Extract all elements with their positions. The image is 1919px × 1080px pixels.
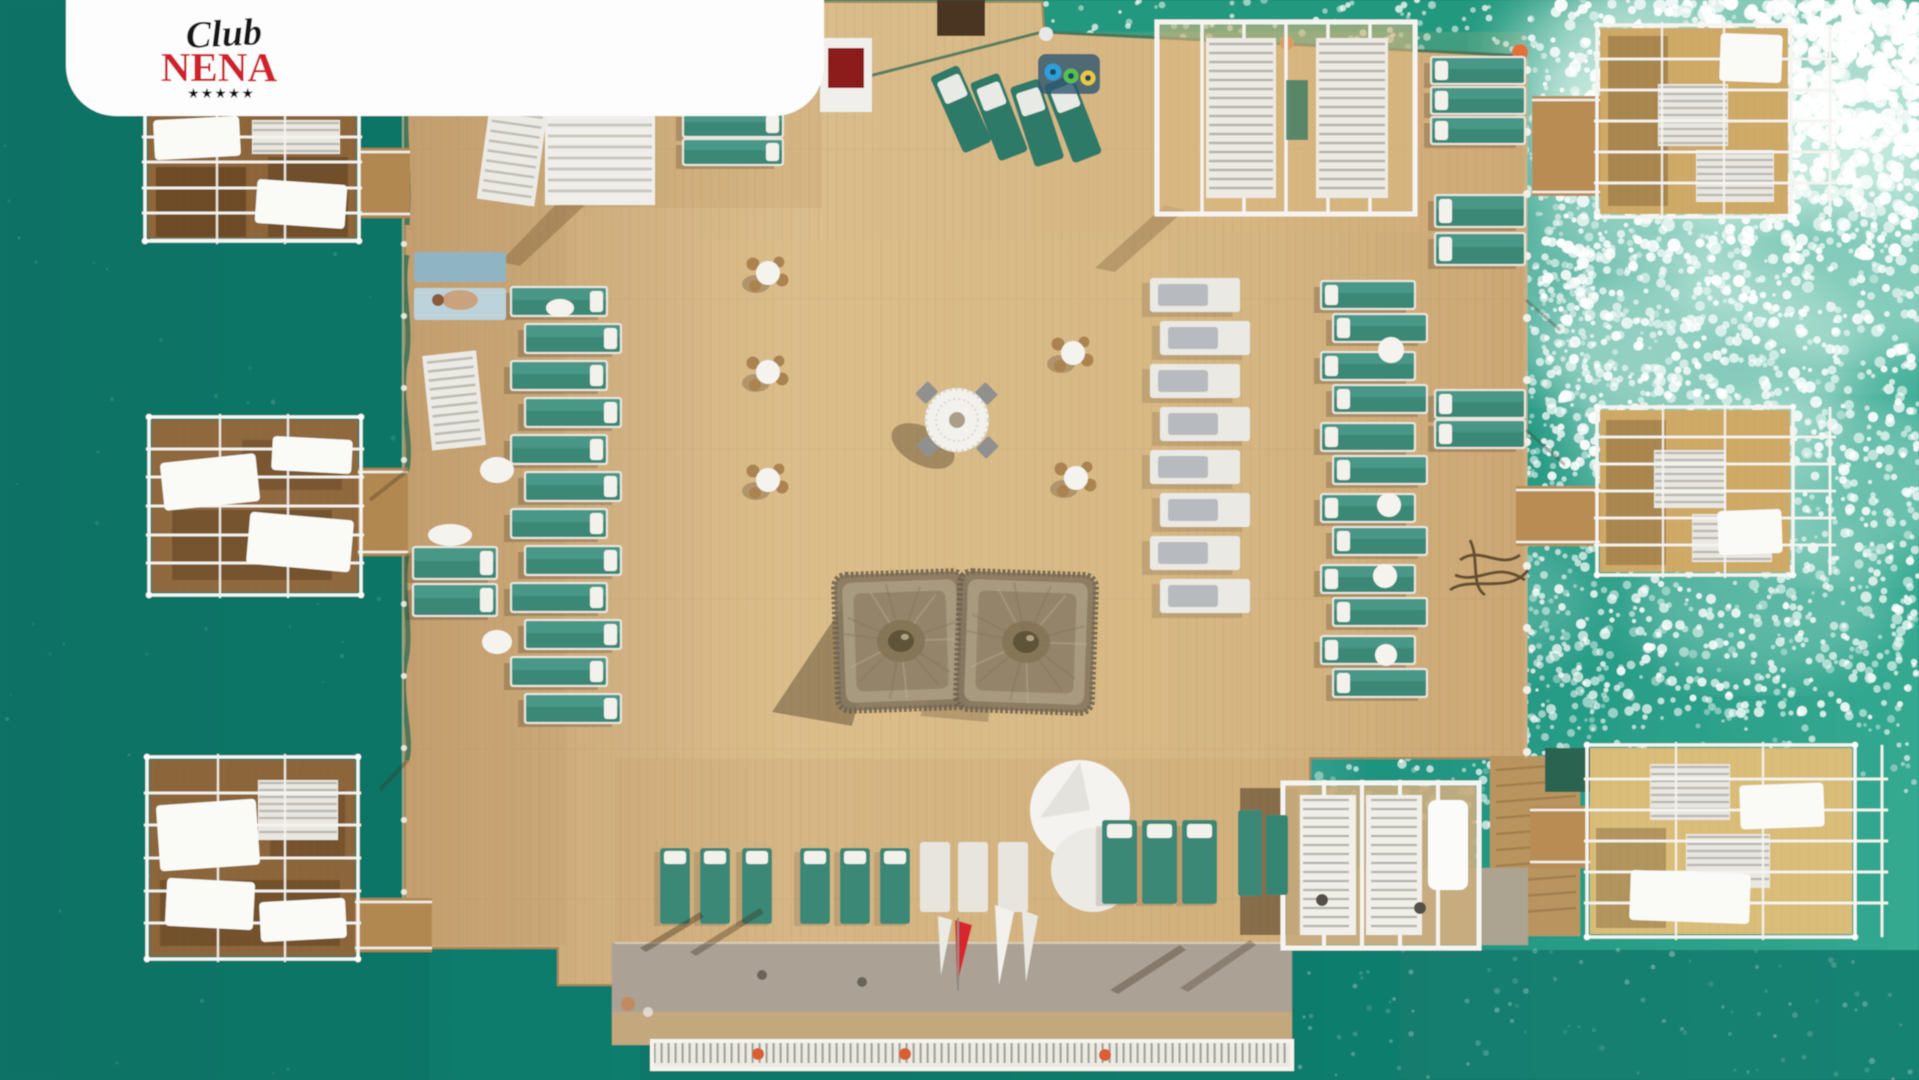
svg-text:NENA: NENA: [161, 44, 278, 90]
svg-text:★★★★★: ★★★★★: [187, 87, 255, 102]
